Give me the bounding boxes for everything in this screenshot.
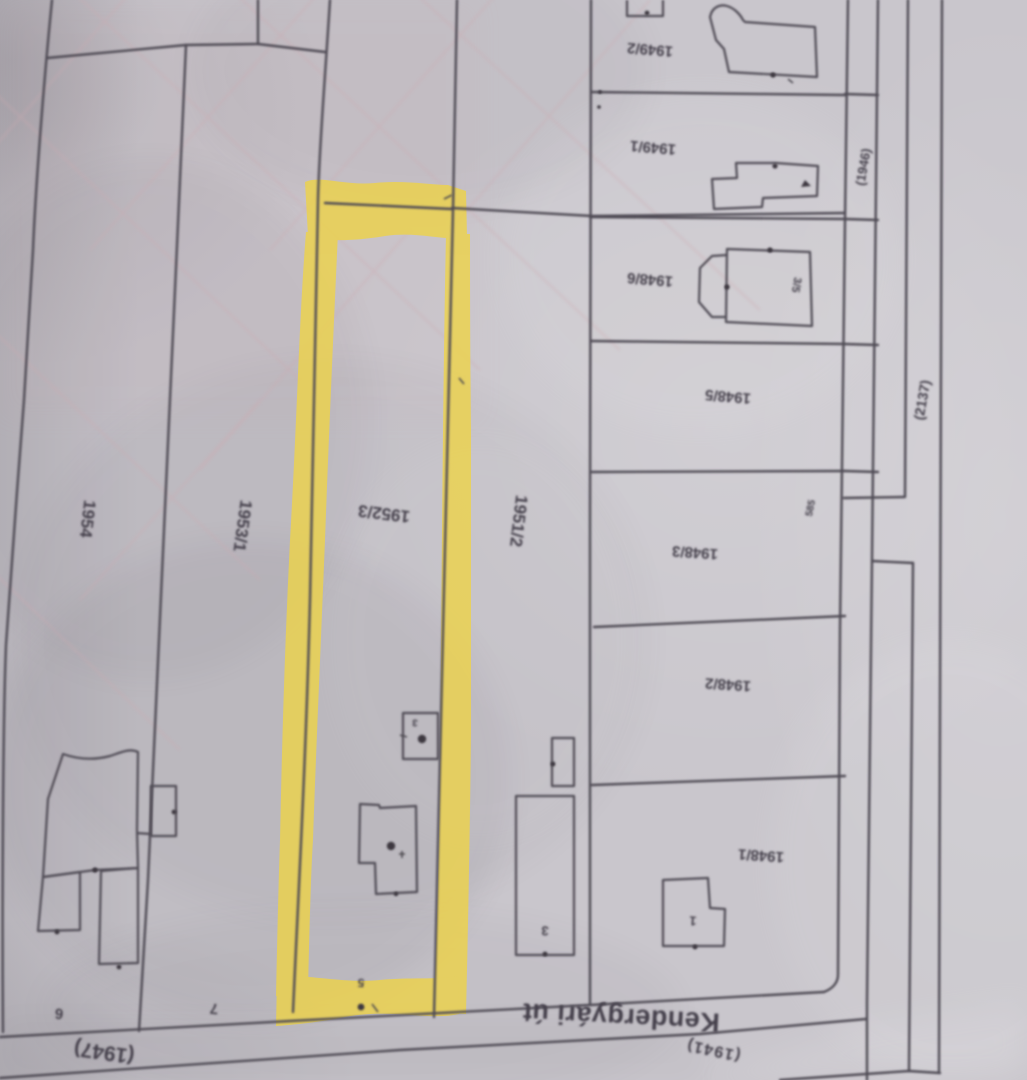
svg-text:6: 6 xyxy=(54,1004,64,1022)
svg-text:7: 7 xyxy=(209,999,219,1017)
svg-text:1948/2: 1948/2 xyxy=(705,674,752,694)
svg-text:1948/1: 1948/1 xyxy=(738,845,785,865)
svg-text:1: 1 xyxy=(689,913,697,928)
svg-text:3: 3 xyxy=(541,923,549,938)
svg-text:1948/3: 1948/3 xyxy=(672,542,719,562)
